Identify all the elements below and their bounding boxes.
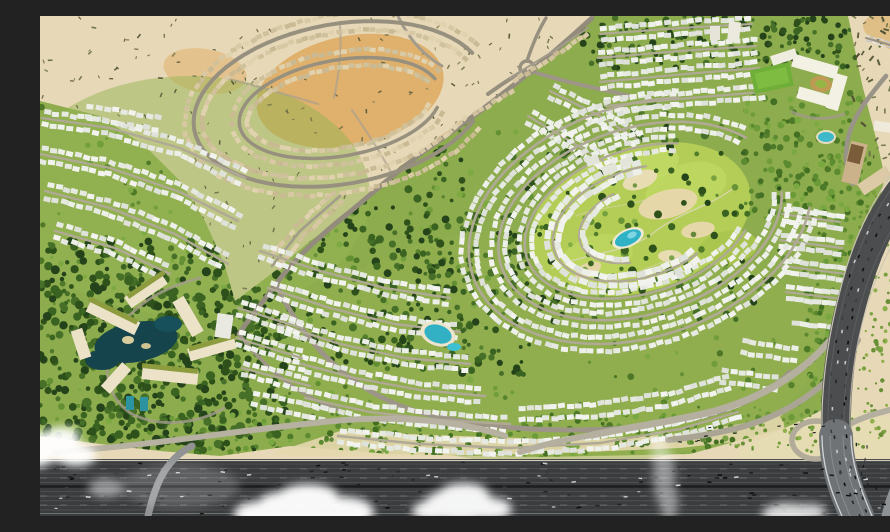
masterplan-aerial-image: Aerial masterplan render: golf community… [40, 16, 890, 516]
resort-pool [126, 396, 134, 410]
waterpark-pool-small [447, 343, 461, 351]
aerial-render-canvas [40, 16, 890, 516]
top-strip-building [727, 21, 741, 42]
resort-pool [140, 397, 148, 411]
haze [120, 464, 240, 508]
cloud-wisp [88, 479, 124, 497]
resort-lagoon [154, 316, 182, 332]
hotel-pool [818, 132, 834, 142]
apartment-building [214, 313, 233, 339]
top-strip-building [710, 26, 720, 40]
lagoon-island [122, 336, 134, 344]
lagoon-island [141, 343, 151, 349]
